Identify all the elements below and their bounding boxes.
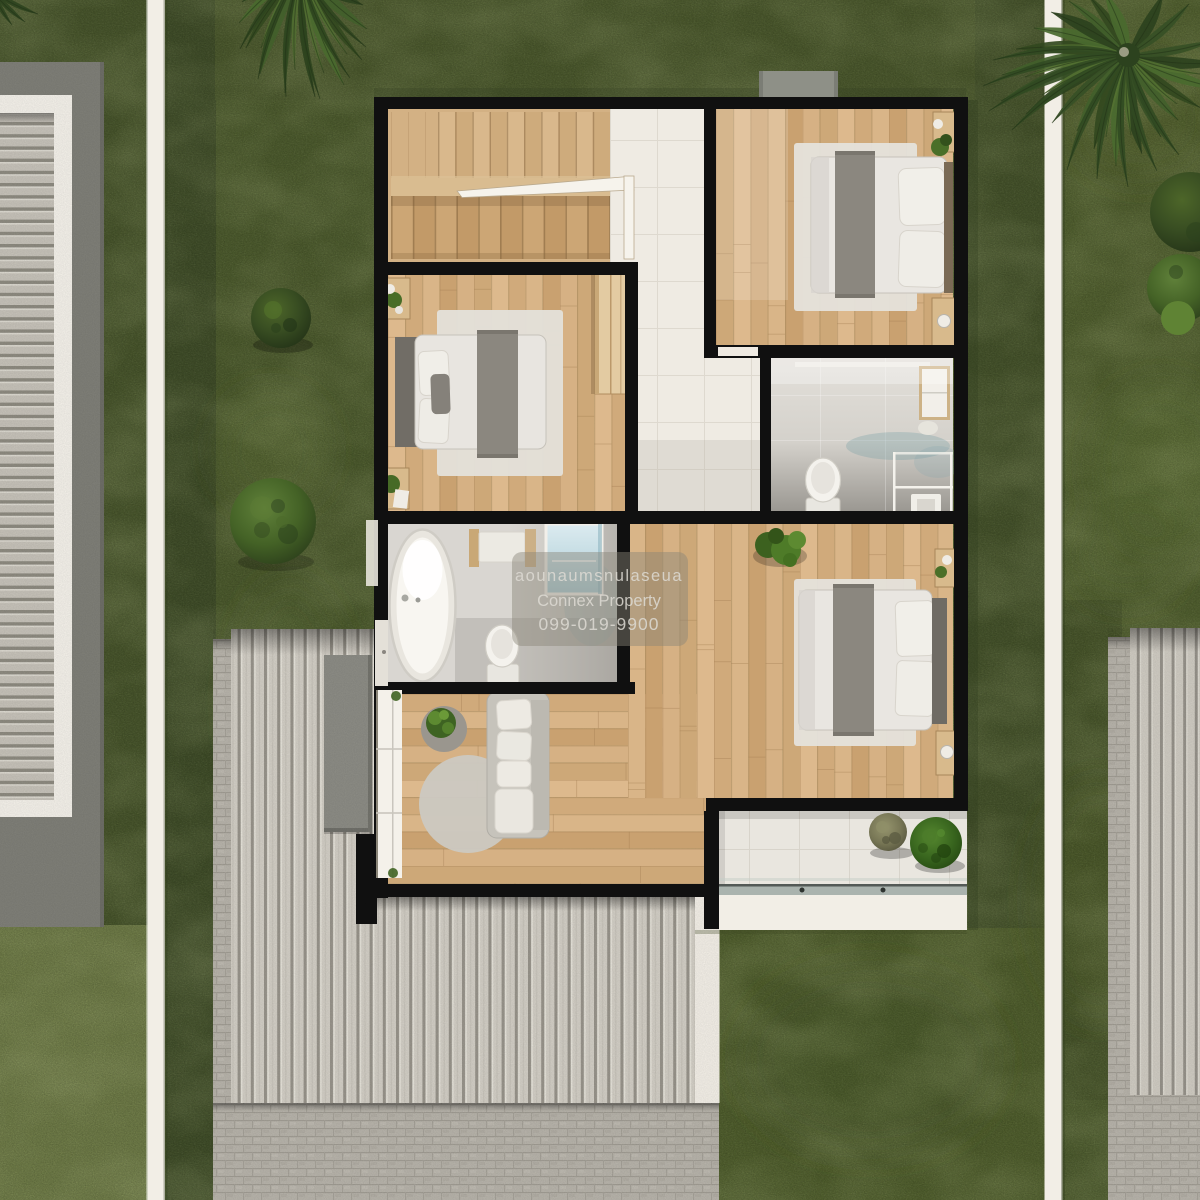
svg-text:aounaumsnulaseua: aounaumsnulaseua (515, 567, 683, 585)
svg-text:099-019-9900: 099-019-9900 (539, 614, 660, 634)
svg-text:Connex Property: Connex Property (537, 592, 662, 610)
